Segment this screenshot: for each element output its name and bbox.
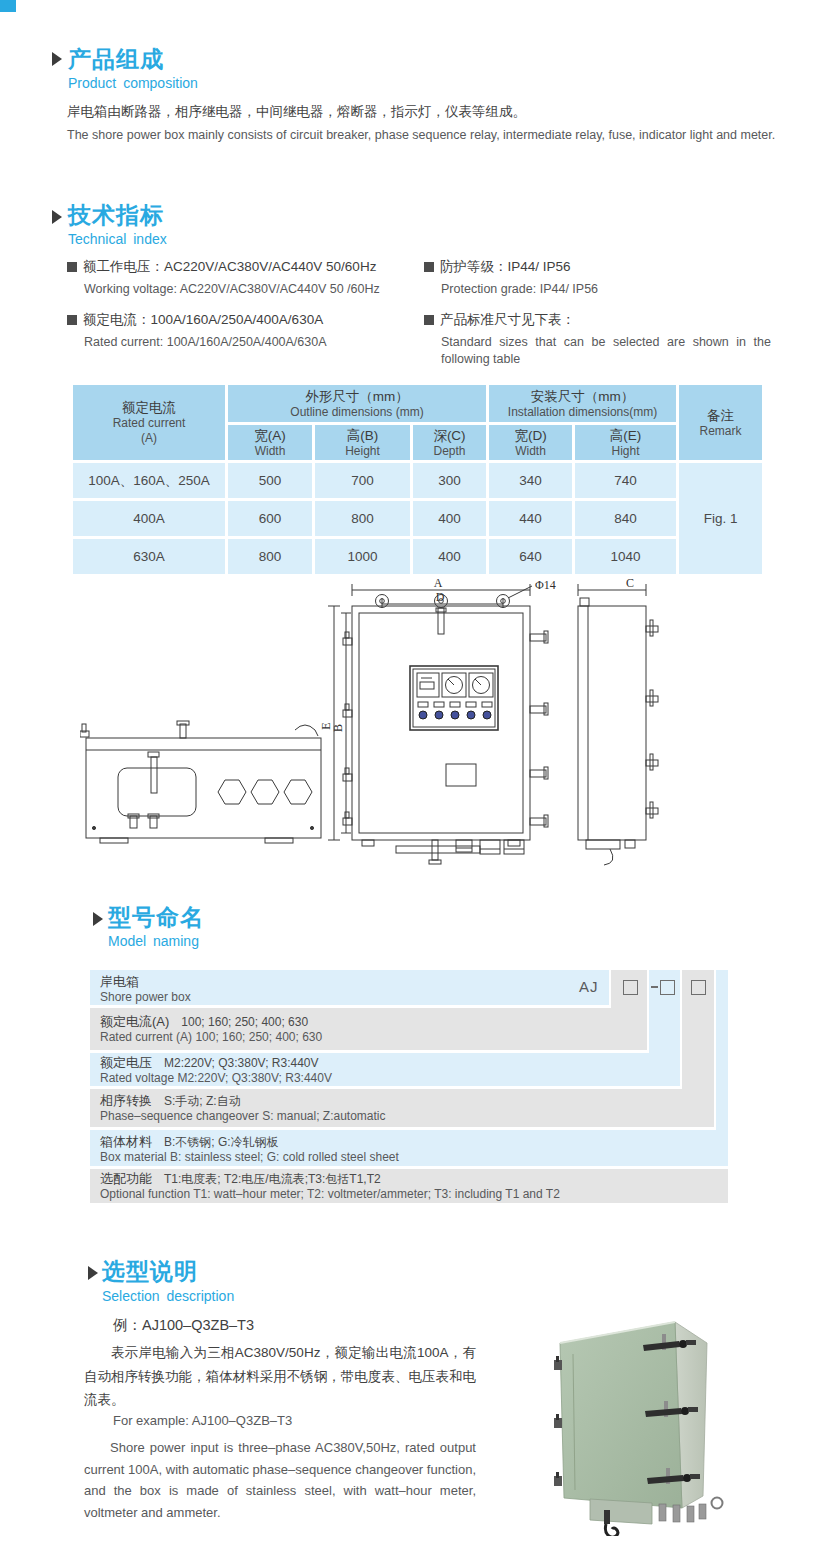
model-code-prefix: AJ <box>579 978 599 995</box>
spec-en-text: Working voltage: AC220V/AC380V/AC440V 50… <box>84 281 417 298</box>
selection-example-en: For example: AJ100–Q3ZB–T3 <box>113 1413 292 1428</box>
spec-column-left: 额工作电压：AC220V/AC380V/AC440V 50/60Hz Worki… <box>67 258 417 364</box>
row-value-en: M2:220V; Q3:380V; R3:440V <box>177 1071 332 1085</box>
row-label-cn: 额定电流(A) <box>100 1014 169 1029</box>
row-label-cn: 箱体材料 <box>100 1134 152 1149</box>
square-bullet-icon <box>424 315 434 325</box>
cell-current: 630A <box>72 538 227 576</box>
spec-en-text: Rated current: 100A/160A/250A/400A/630A <box>84 334 417 351</box>
row-label-en: Optional function <box>100 1187 190 1201</box>
spec-column-right: 防护等级：IP44/ IP56 Protection grade: IP44/ … <box>424 258 769 381</box>
square-bullet-icon <box>67 262 77 272</box>
row-label-en: Rated current (A) <box>100 1030 192 1044</box>
square-bullet-icon <box>424 262 434 272</box>
row-value-en: B: stainless steel; G: cold rolled steel… <box>170 1150 399 1164</box>
product-photo <box>540 1296 830 1536</box>
section-subtitle-model-naming: Model naming <box>108 933 199 949</box>
ladder-row-rated-voltage: 额定电压M2:220V; Q3:380V; R3:440V Rated volt… <box>90 1053 680 1086</box>
top-view-drawing <box>80 721 321 843</box>
row-label-cn: 选配功能 <box>100 1171 152 1186</box>
col-header-rated-current: 额定电流 Rated current (A) <box>72 384 227 462</box>
ladder-row-box-material: 箱体材料B:不锈钢; G:冷轧钢板 Box material B: stainl… <box>90 1130 728 1166</box>
row-label-en: Phase–sequence changeover <box>100 1109 259 1123</box>
sub-header-width-a: 宽(A)Width <box>227 424 314 462</box>
dim-label-c: C <box>626 578 634 590</box>
row-value-cn: B:不锈钢; G:冷轧钢板 <box>164 1135 279 1149</box>
front-view-drawing <box>328 584 548 864</box>
indicator-lights <box>418 702 492 719</box>
model-code-box-function <box>691 980 706 995</box>
spec-en-text: Protection grade: IP44/ IP56 <box>441 281 769 298</box>
product-composition-text-cn: 岸电箱由断路器，相序继电器，中间继电器，熔断器，指示灯，仪表等组成。 <box>67 103 767 121</box>
spec-cn-text: 防护等级：IP44/ IP56 <box>440 259 571 274</box>
section-title-selection: 选型说明 <box>102 1256 198 1287</box>
section-arrow-icon <box>88 1266 98 1280</box>
table-row: 100A、160A、250A 500 700 300 340 740 Fig. … <box>72 462 764 500</box>
dim-label-d: D <box>436 590 445 604</box>
selection-body-cn: 表示岸电输入为三相AC380V/50Hz，额定输出电流100A，有自动相序转换功… <box>84 1341 476 1412</box>
corner-accent-mark <box>0 0 16 12</box>
section-subtitle-selection: Selection description <box>102 1288 234 1304</box>
spec-cn-text: 额工作电压：AC220V/AC380V/AC440V 50/60Hz <box>83 259 376 274</box>
sub-header-depth-c: 深(C)Depth <box>412 424 488 462</box>
spec-protection-grade: 防护等级：IP44/ IP56 Protection grade: IP44/ … <box>424 258 769 298</box>
model-naming-ladder: 岸电箱 Shore power box 额定电流(A)100; 160; 250… <box>90 968 745 1204</box>
spec-en-text: Standard sizes that can be selected are … <box>441 334 771 368</box>
sub-header-width-d: 宽(D)Width <box>488 424 574 462</box>
spec-cn-text: 额定电流：100A/160A/250A/400A/630A <box>83 312 323 327</box>
dimensions-table: 额定电流 Rated current (A) 外形尺寸（mm） Outline … <box>70 382 765 577</box>
technical-drawing: A D Φ14 E B C <box>80 578 770 878</box>
table-row: 630A 800 1000 400 640 1040 <box>72 538 764 576</box>
dim-label-phi14: Φ14 <box>535 578 556 592</box>
selection-body-en: Shore power input is three–phase AC380V,… <box>84 1437 476 1523</box>
row-value-en: 100; 160; 250; 400; 630 <box>195 1030 322 1044</box>
section-arrow-icon <box>52 210 62 224</box>
row-value-cn: M2:220V; Q3:380V; R3:440V <box>164 1056 319 1070</box>
spec-standard-sizes: 产品标准尺寸见下表： Standard sizes that can be se… <box>424 311 769 368</box>
sub-header-height-b: 高(B)Height <box>314 424 412 462</box>
spec-rated-current: 额定电流：100A/160A/250A/400A/630A Rated curr… <box>67 311 417 351</box>
spec-cn-text: 产品标准尺寸见下表： <box>440 312 575 327</box>
section-title-model-naming: 型号命名 <box>108 902 204 933</box>
row-label-en: Rated voltage <box>100 1071 174 1085</box>
model-code-box-voltage <box>660 980 675 995</box>
section-subtitle-technical-index: Technical index <box>68 231 167 247</box>
cell-remark-fig: Fig. 1 <box>678 462 764 576</box>
col-header-remark: 备注 Remark <box>678 384 764 462</box>
side-view-drawing <box>578 584 658 865</box>
section-title-product-composition: 产品组成 <box>68 44 164 75</box>
ladder-row-optional-function: 选配功能T1:电度表; T2:电压/电流表;T3:包括T1,T2 Optiona… <box>90 1169 728 1203</box>
group-header-installation-dimensions: 安装尺寸（mm） Installation dimensions(mm) <box>488 384 678 424</box>
ladder-row-phase-sequence: 相序转换S:手动; Z:自动 Phase–sequence changeover… <box>90 1089 714 1127</box>
row-value-en: T1: watt–hour meter; T2: voltmeter/ammet… <box>193 1187 560 1201</box>
section-title-technical-index: 技术指标 <box>68 200 164 231</box>
model-code-box-current <box>623 980 638 995</box>
row-label-cn: 额定电压 <box>100 1055 152 1070</box>
row-label-cn: 岸电箱 <box>100 974 609 990</box>
row-value-en: S: manual; Z:automatic <box>262 1109 385 1123</box>
dim-label-b: B <box>331 724 345 732</box>
square-bullet-icon <box>67 315 77 325</box>
table-row: 400A 600 800 400 440 840 <box>72 500 764 538</box>
model-code-dash <box>651 986 658 988</box>
ladder-row-rated-current: 额定电流(A)100; 160; 250; 400; 630 Rated cur… <box>90 1008 647 1050</box>
product-composition-text-en: The shore power box mainly consists of c… <box>67 128 787 142</box>
cell-current: 400A <box>72 500 227 538</box>
section-subtitle-product-composition: Product composition <box>68 75 198 91</box>
ladder-row-shore-power-box: 岸电箱 Shore power box <box>90 970 609 1005</box>
row-label-en: Shore power box <box>100 990 609 1005</box>
section-arrow-icon <box>93 912 103 926</box>
dim-label-a: A <box>434 578 443 590</box>
cell-current: 100A、160A、250A <box>72 462 227 500</box>
row-value-cn: 100; 160; 250; 400; 630 <box>181 1015 308 1029</box>
sub-header-height-e: 高(E)Hight <box>574 424 678 462</box>
catalog-page: 产品组成 Product composition 岸电箱由断路器，相序继电器，中… <box>0 0 830 1568</box>
row-value-cn: S:手动; Z:自动 <box>164 1094 241 1108</box>
spec-working-voltage: 额工作电压：AC220V/AC380V/AC440V 50/60Hz Worki… <box>67 258 417 298</box>
selection-example-cn: 例：AJ100–Q3ZB–T3 <box>113 1316 254 1335</box>
group-header-outline-dimensions: 外形尺寸（mm） Outline dimensions (mm) <box>227 384 488 424</box>
row-label-en: Box material <box>100 1150 167 1164</box>
row-label-cn: 相序转换 <box>100 1093 152 1108</box>
section-arrow-icon <box>52 52 62 66</box>
row-value-cn: T1:电度表; T2:电压/电流表;T3:包括T1,T2 <box>164 1172 381 1186</box>
